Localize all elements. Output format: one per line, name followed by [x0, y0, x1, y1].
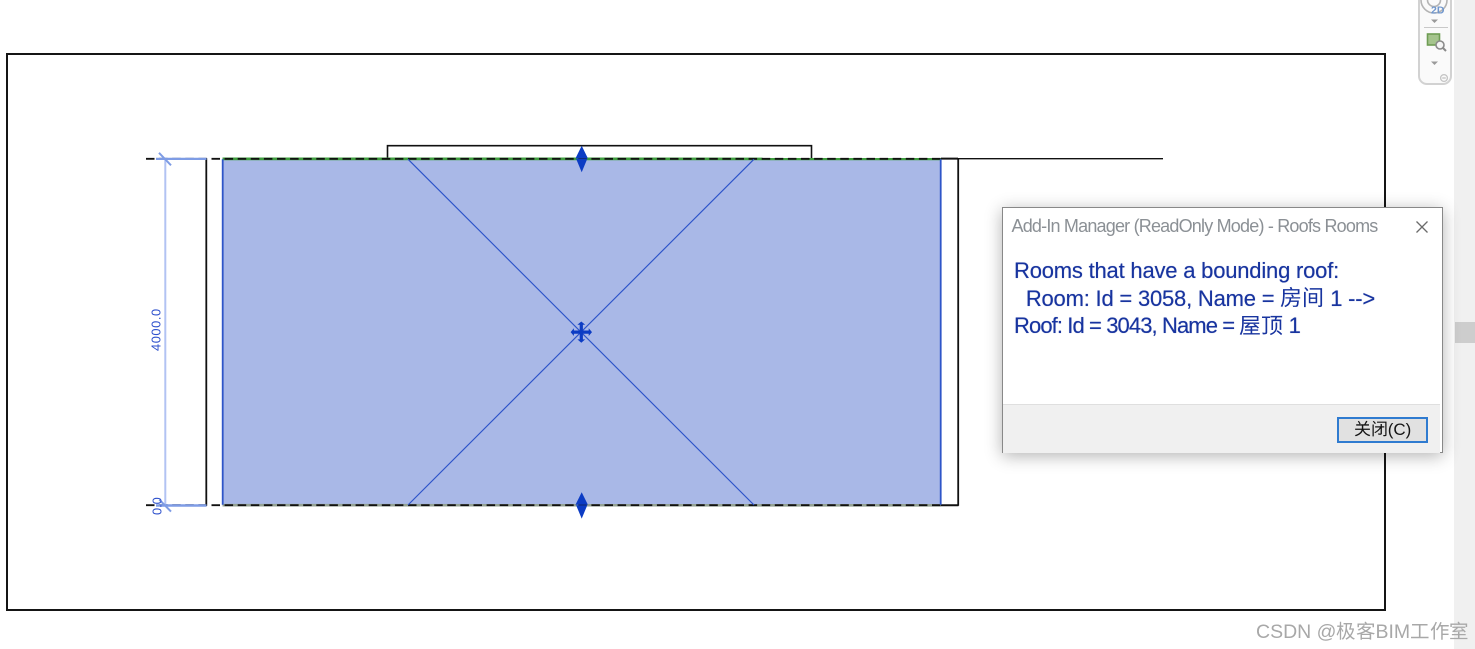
svg-text:0.0: 0.0	[150, 497, 165, 515]
svg-text:4000.0: 4000.0	[149, 308, 164, 351]
